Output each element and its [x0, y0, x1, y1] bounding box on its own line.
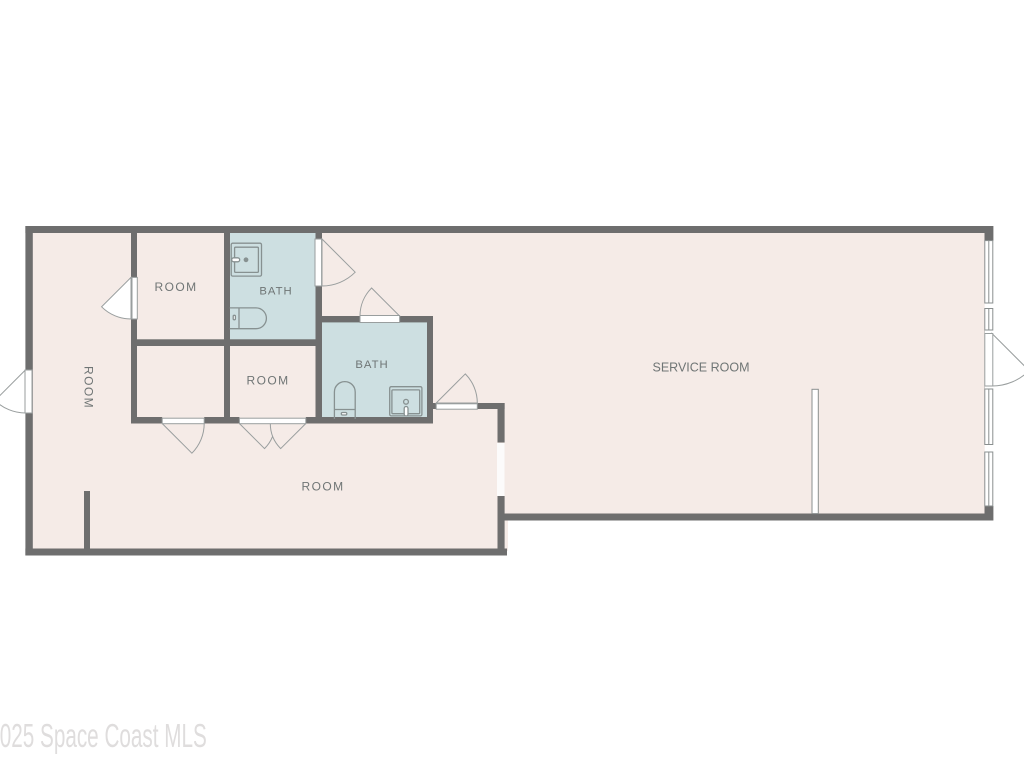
svg-text:BATH: BATH	[259, 286, 292, 298]
svg-text:ROOM: ROOM	[302, 480, 345, 494]
svg-text:SERVICE ROOM: SERVICE ROOM	[652, 361, 749, 375]
svg-text:ROOM: ROOM	[247, 374, 290, 388]
svg-text:ROOM: ROOM	[155, 280, 198, 294]
svg-text:BATH: BATH	[355, 359, 388, 371]
svg-text:ROOM: ROOM	[81, 366, 95, 409]
